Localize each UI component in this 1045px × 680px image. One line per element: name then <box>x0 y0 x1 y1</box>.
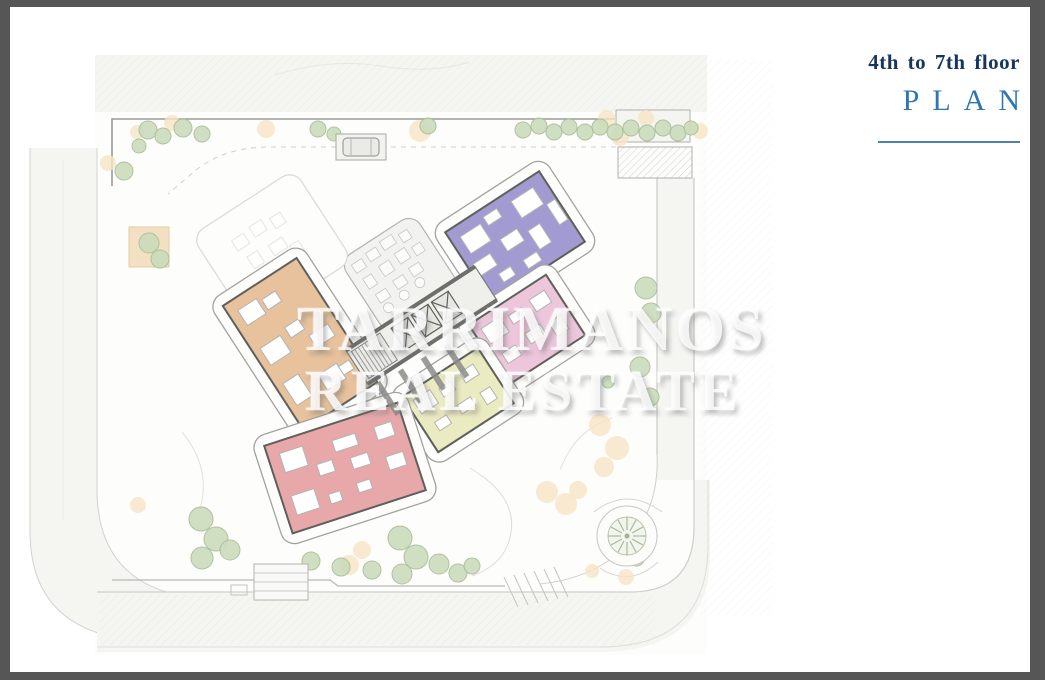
tree-icon <box>191 547 213 569</box>
header-divider <box>878 141 1020 143</box>
shrub-icon <box>130 497 146 513</box>
tree-icon <box>194 126 210 142</box>
shrub-icon <box>569 481 587 499</box>
tree-icon <box>531 118 547 134</box>
tree-icon <box>420 118 436 134</box>
tree-icon <box>155 128 171 144</box>
ramp-hatched <box>618 147 692 178</box>
plan-header: 4th to 7th floor PLAN <box>868 50 1020 118</box>
tree-icon <box>592 119 608 135</box>
tree-icon <box>139 233 159 253</box>
tree-icon <box>132 139 146 153</box>
shrub-icon <box>605 436 629 460</box>
tree-icon <box>623 120 639 136</box>
floor-range-label: 4th to 7th floor <box>868 50 1020 75</box>
tree-icon <box>684 121 698 135</box>
tree-icon <box>515 122 531 138</box>
car-icon <box>336 134 386 160</box>
tree-icon <box>464 558 480 574</box>
tree-icon <box>392 564 412 584</box>
frame-bottom <box>0 672 1045 680</box>
tree-icon <box>310 121 326 137</box>
tree-icon <box>220 540 240 560</box>
tree-icon <box>639 125 655 141</box>
shrub-icon <box>536 481 558 503</box>
shrub-icon <box>594 457 614 477</box>
tree-icon <box>363 561 381 579</box>
frame-top <box>0 0 1045 7</box>
tree-icon <box>139 121 157 139</box>
shrub-icon <box>353 541 371 559</box>
tree-icon <box>655 120 671 136</box>
tree-icon <box>332 558 350 576</box>
shrub-icon <box>618 569 634 585</box>
tree-icon <box>577 124 593 140</box>
plan-title: PLAN <box>868 84 1033 118</box>
shrub-icon <box>638 110 654 126</box>
shrub-icon <box>100 155 116 171</box>
page: TARRIMANOS REAL ESTATE 4th to 7th floor … <box>0 0 1045 680</box>
tree-icon <box>189 507 213 531</box>
tree-icon <box>607 124 623 140</box>
frame-right <box>1030 0 1045 680</box>
tree-icon <box>561 119 577 135</box>
watermark-line1: TARRIMANOS <box>297 292 767 366</box>
tree-icon <box>429 554 449 574</box>
palm-tree-icon <box>597 506 657 566</box>
tree-icon <box>151 250 169 268</box>
tree-icon <box>174 119 192 137</box>
shrub-icon <box>257 120 275 138</box>
tree-icon <box>546 124 562 140</box>
frame-left <box>0 0 10 680</box>
tree-icon <box>388 526 412 550</box>
tree-icon <box>115 162 133 180</box>
shrub-icon <box>585 564 599 578</box>
watermark-line2: REAL ESTATE <box>305 357 742 424</box>
